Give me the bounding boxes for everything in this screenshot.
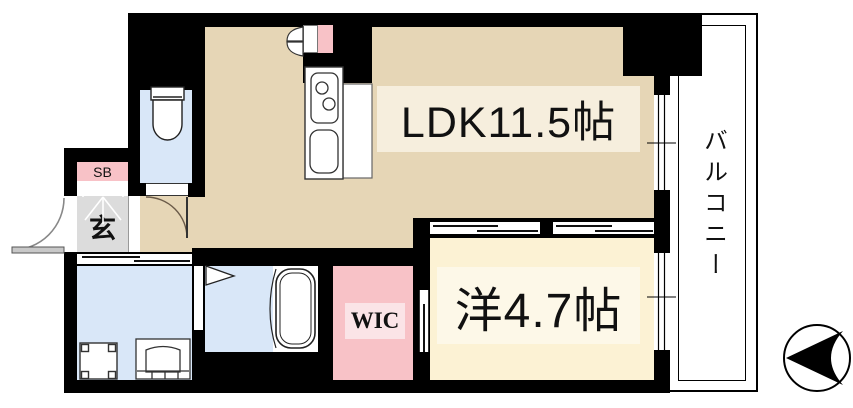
western-window-glass <box>647 253 676 350</box>
washing-machine-pan-icon <box>80 343 117 379</box>
bath-folding-door-icon <box>206 266 234 285</box>
fixtures-layer <box>0 0 853 408</box>
floor-plan: SB バルコニー LDK11.5帖 洋4.7帖 <box>0 0 853 408</box>
ldk-window-glass <box>647 95 676 190</box>
stove-icon <box>311 73 338 123</box>
toilet-icon <box>151 87 184 140</box>
kitchen-counter-icon <box>305 67 372 179</box>
vanity-sink-icon <box>136 339 190 379</box>
toilet-door-icon <box>146 197 187 238</box>
genkan-fan-pattern <box>72 166 134 224</box>
north-arrow-icon <box>784 325 850 391</box>
kitchen-hatch-door-icon <box>287 27 303 56</box>
kitchen-sink-icon <box>310 130 338 173</box>
bathtub-icon <box>270 269 315 348</box>
entrance-door-icon <box>12 198 64 253</box>
